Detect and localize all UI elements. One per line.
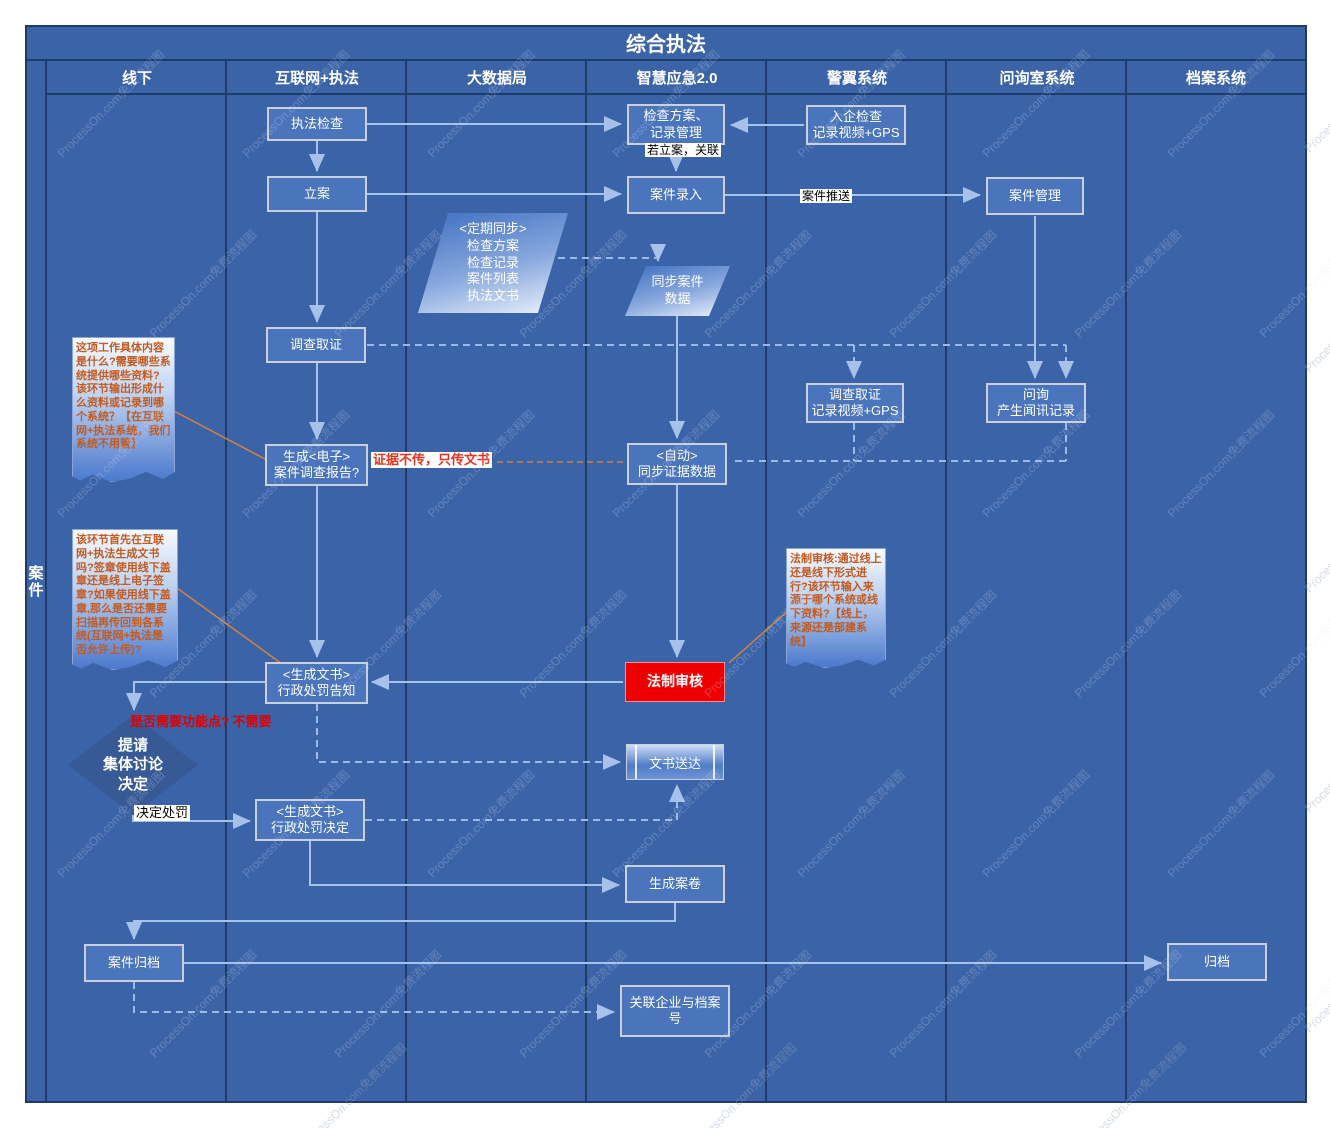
note-document-signing[interactable]: 该环节首先在互联网+执法生成文书吗?签章使用线下盖章还是线上电子签章?如果使用线… bbox=[72, 529, 178, 670]
lane-inquiry-room bbox=[947, 61, 1127, 1103]
auto-sync-evidence-box[interactable]: <自动> 同步证据数据 bbox=[627, 443, 727, 485]
document-delivery-box[interactable]: 文书送达 bbox=[626, 744, 724, 780]
penalty-decision-box[interactable]: <生成文书> 行政处罚决定 bbox=[255, 799, 365, 841]
investigation-gps-box[interactable]: 调查取证 记录视频+GPS bbox=[806, 383, 904, 423]
inspection-plan-record-box[interactable]: 检查方案、 记录管理 bbox=[627, 104, 725, 145]
pool-title: 综合执法 bbox=[25, 25, 1307, 61]
generate-case-file-box[interactable]: 生成案卷 bbox=[625, 865, 725, 903]
legal-review-box[interactable]: 法制审核 bbox=[625, 662, 725, 702]
note-legal-review[interactable]: 法制审核:通过线上还是线下形式进行?该环节输入来源于哪个系统或线下资料?【线上，… bbox=[786, 548, 886, 668]
lane-smart-emergency bbox=[587, 61, 767, 1103]
link-enterprise-archive-box[interactable]: 关联企业与档案 号 bbox=[620, 985, 730, 1037]
enterprise-inspection-gps-box[interactable]: 入企检查 记录视频+GPS bbox=[806, 105, 906, 145]
inquiry-record-box[interactable]: 问询 产生闻讯记录 bbox=[986, 383, 1086, 423]
label-need-function-point[interactable]: 是否需要功能点? 不需要 bbox=[130, 711, 272, 730]
enforcement-inspection-box[interactable]: 执法检查 bbox=[267, 107, 367, 141]
case-management-box[interactable]: 案件管理 bbox=[986, 177, 1084, 215]
lane-header-smart-emergency: 智慧应急2.0 bbox=[587, 61, 767, 95]
edge-label-evidence-not-sent[interactable]: 证据不传，只传文书 bbox=[371, 452, 492, 468]
generate-electronic-report-box[interactable]: 生成<电子> 案件调查报告? bbox=[265, 444, 368, 486]
stage-column-case: 案件 bbox=[25, 61, 47, 1103]
case-filing-box[interactable]: 立案 bbox=[267, 176, 367, 212]
lane-header-offline: 线下 bbox=[47, 61, 227, 95]
lane-internet-enforcement bbox=[227, 61, 407, 1103]
investigation-evidence-box[interactable]: 调查取证 bbox=[266, 327, 366, 363]
lane-header-big-data-bureau: 大数据局 bbox=[407, 61, 587, 95]
lane-header-police-wing: 警翼系统 bbox=[767, 61, 947, 95]
edge-label-if-filed[interactable]: 若立案，关联 bbox=[645, 143, 721, 157]
stage-label: 案件 bbox=[25, 565, 46, 599]
case-archive-box[interactable]: 案件归档 bbox=[84, 944, 184, 982]
edge-label-case-push[interactable]: 案件推送 bbox=[800, 189, 852, 203]
flowchart-canvas: 综合执法 案件 线下 互联网+执法 大数据局 智慧应急2.0 警翼系统 问询室系… bbox=[0, 0, 1330, 1128]
edge-label-decide-penalty[interactable]: 决定处罚 bbox=[134, 805, 190, 821]
note-work-content[interactable]: 这项工作具体内容是什么?需要哪些系统提供哪些资料? 该环节输出形成什么资料或记录… bbox=[72, 337, 175, 482]
lane-header-inquiry-room: 问询室系统 bbox=[947, 61, 1127, 95]
penalty-notice-box[interactable]: <生成文书> 行政处罚告知 bbox=[265, 662, 368, 704]
case-entry-box[interactable]: 案件录入 bbox=[627, 176, 725, 214]
lane-header-internet-enforcement: 互联网+执法 bbox=[227, 61, 407, 95]
archive-box[interactable]: 归档 bbox=[1167, 943, 1267, 981]
pool-title-text: 综合执法 bbox=[626, 28, 706, 57]
lane-header-archive-system: 档案系统 bbox=[1127, 61, 1305, 95]
